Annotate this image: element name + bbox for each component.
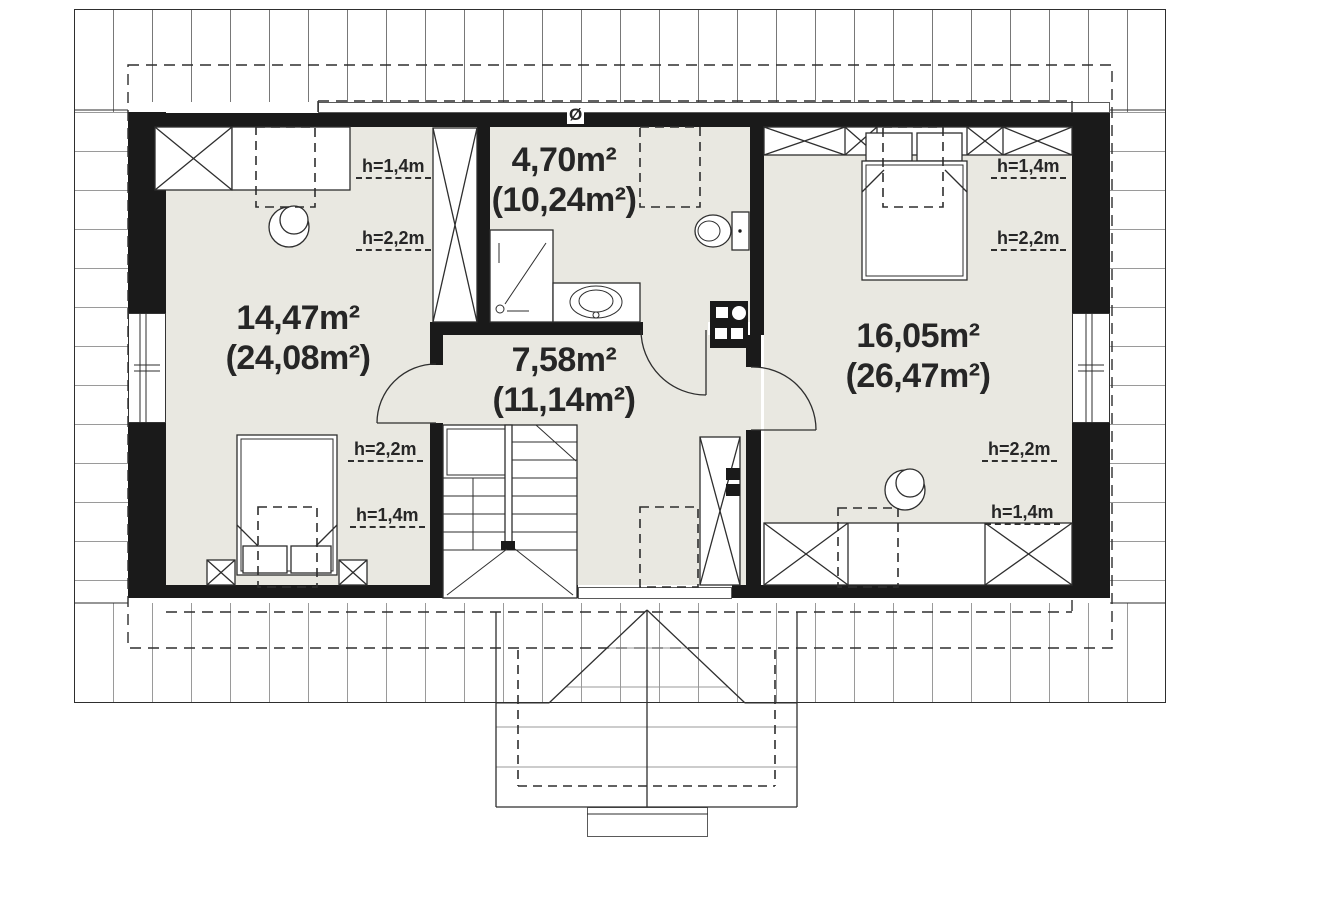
room-area-label-hall: 7,58m² (11,14m²) bbox=[458, 340, 670, 420]
room-area-label-bedroom-right: 16,05m² (26,47m²) bbox=[808, 316, 1028, 396]
room-area-label-bathroom: 4,70m² (10,24m²) bbox=[458, 140, 670, 220]
dormer bbox=[496, 610, 797, 814]
floor-plan: 14,47m² (24,08m²) 4,70m² (10,24m²) 7,58m… bbox=[0, 0, 1321, 900]
room-area-total: (11,14m²) bbox=[458, 380, 670, 420]
room-area-total: (24,08m²) bbox=[168, 338, 428, 378]
room-area: 4,70m² bbox=[458, 140, 670, 180]
height-label: h=2,2m bbox=[982, 439, 1057, 462]
room-area-total: (10,24m²) bbox=[458, 180, 670, 220]
height-label: h=1,4m bbox=[991, 156, 1066, 179]
height-label: h=2,2m bbox=[991, 228, 1066, 251]
bed-icon bbox=[237, 435, 337, 575]
vent-symbol: Ø bbox=[567, 106, 584, 124]
height-label: h=2,2m bbox=[356, 228, 431, 251]
room-area: 14,47m² bbox=[168, 298, 428, 338]
height-label: h=2,2m bbox=[348, 439, 423, 462]
room-area-label-bedroom-left: 14,47m² (24,08m²) bbox=[168, 298, 428, 378]
room-area-total: (26,47m²) bbox=[808, 356, 1028, 396]
height-label: h=1,4m bbox=[985, 502, 1060, 525]
plan-linework bbox=[0, 0, 1321, 900]
sink-icon bbox=[553, 283, 640, 322]
armchair-icon bbox=[885, 469, 925, 510]
room-area: 16,05m² bbox=[808, 316, 1028, 356]
chimney-icon bbox=[710, 301, 748, 348]
stairs-icon bbox=[443, 425, 577, 598]
wardrobe-icon bbox=[764, 523, 1072, 585]
armchair-icon bbox=[269, 206, 309, 247]
wardrobe-icon bbox=[700, 437, 740, 585]
shower-icon bbox=[490, 230, 553, 322]
room-area: 7,58m² bbox=[458, 340, 670, 380]
height-label: h=1,4m bbox=[350, 505, 425, 528]
toilet-icon bbox=[695, 212, 749, 250]
height-label: h=1,4m bbox=[356, 156, 431, 179]
